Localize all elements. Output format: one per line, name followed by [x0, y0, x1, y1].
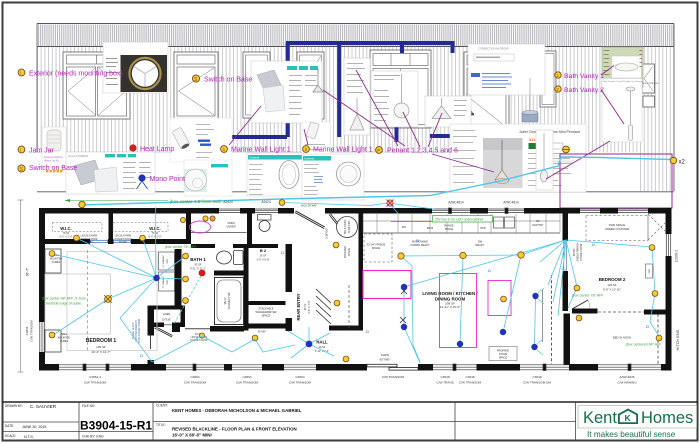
svg-text:C/W TRANSOM DM: C/W TRANSOM DM [523, 381, 551, 385]
svg-text:25v line in for LED undercabin: 25v line in for LED undercabinet [435, 218, 483, 222]
svg-text:POCKET DOOR: POCKET DOOR [81, 239, 98, 241]
svg-text:C/W TRANS: C/W TRANS [436, 381, 453, 385]
svg-text:6'-0" X 2'-0": 6'-0" X 2'-0" [59, 236, 72, 239]
svg-text:A/WC4814: A/WC4814 [448, 201, 464, 205]
svg-text:29 SF: 29 SF [319, 346, 326, 349]
svg-text:FROSTED FRENCH: FROSTED FRENCH [136, 320, 138, 342]
svg-text:POCKET DOOR: POCKET DOOR [115, 239, 132, 241]
svg-text:36"X80": 36"X80" [258, 332, 266, 334]
svg-text:LIVING ROOM / KITCHEN /: LIVING ROOM / KITCHEN / [422, 291, 478, 296]
svg-text:WO: WO [402, 225, 406, 229]
svg-text:B 2: B 2 [260, 248, 267, 253]
svg-text:DW: DW [478, 240, 483, 244]
svg-text:lumens: lumens [305, 157, 315, 161]
svg-text:3T CABINET: 3T CABINET [162, 254, 165, 267]
svg-text:FILE NO:: FILE NO: [82, 404, 95, 408]
svg-text:P: P [377, 148, 380, 153]
svg-text:UNDER COUNTER: UNDER COUNTER [605, 227, 630, 231]
svg-text:A/WC4845: A/WC4845 [620, 375, 635, 379]
svg-text:PPD: PPD [167, 258, 169, 263]
svg-text:REVISED BLACKLINE - FLOOR PLAN: REVISED BLACKLINE - FLOOR PLAN & FRONT E… [172, 427, 297, 432]
svg-text:C3848: C3848 [440, 375, 449, 379]
svg-text:10'-4" X 12'-7": 10'-4" X 12'-7" [92, 350, 111, 354]
svg-text:Penant 1,2,3,4,5 and 6: Penant 1,2,3,4,5 and 6 [387, 148, 458, 155]
svg-text:C/W TRANSOM: C/W TRANSOM [289, 381, 312, 385]
svg-text:Marine Wall Light 1: Marine Wall Light 1 [231, 147, 291, 154]
svg-text:SPACE: SPACE [347, 247, 351, 256]
svg-text:D: D [646, 324, 649, 329]
svg-text:D: D [488, 268, 491, 273]
svg-text:36'-7": 36'-7" [26, 267, 30, 276]
svg-text:MICROWAVE: MICROWAVE [412, 240, 428, 244]
svg-text:C/W TRANSOM: C/W TRANSOM [382, 375, 405, 379]
svg-text:18"X30": 18"X30" [162, 319, 171, 322]
svg-text:REAR ENTRY: REAR ENTRY [296, 293, 301, 320]
svg-text:Exterior (needs mounting box): Exterior (needs mounting box) [29, 71, 123, 78]
svg-text:High Powder 2 Light Pendant in: High Powder 2 Light Pendant in Chrome [603, 80, 643, 83]
svg-text:A2424: A2424 [261, 200, 270, 204]
svg-text:9'-11" X 11'-1": 9'-11" X 11'-1" [190, 267, 206, 271]
svg-text:9'-8" X 10'-10": 9'-8" X 10'-10" [603, 288, 621, 292]
svg-text:K: K [625, 413, 632, 423]
svg-text:jbox center 48" AFF, 5' from: jbox center 48" AFF, 5' from [41, 297, 86, 301]
svg-text:Bath Vanity 2: Bath Vanity 2 [564, 87, 604, 94]
svg-text:KENT HOMES - DEBORAH NICHOLSON: KENT HOMES - DEBORAH NICHOLSON & MICHAEL… [172, 408, 302, 413]
svg-text:D: D [140, 353, 143, 358]
svg-text:D: D [416, 238, 419, 243]
svg-text:C/W TRANSOM: C/W TRANSOM [236, 381, 259, 385]
svg-text:home COSMOS: home COSMOS [68, 154, 88, 158]
svg-text:CUBES: CUBES [52, 261, 61, 264]
svg-text:STACKABLE: STACKABLE [258, 307, 273, 311]
svg-text:I: I [20, 148, 21, 153]
svg-text:DRAWN BY:: DRAWN BY: [5, 404, 23, 408]
svg-text:CHK BY: ENG: CHK BY: ENG [82, 435, 104, 439]
svg-text:bedside edge of cubie: bedside edge of cubie [46, 302, 81, 306]
svg-text:3'-0" X 8'-8": 3'-0" X 8'-8" [256, 259, 269, 262]
svg-text:TITLE:: TITLE: [156, 423, 166, 427]
svg-text:KHPD: KHPD [381, 353, 390, 357]
svg-text:LINEN: LINEN [163, 313, 171, 316]
svg-text:PPD: PPD [167, 279, 169, 284]
svg-text:A2424: A2424 [223, 200, 232, 204]
svg-text:DATE:: DATE: [5, 424, 14, 428]
svg-text:HALL: HALL [316, 340, 328, 345]
svg-text:BD-B: BD-B [427, 226, 433, 230]
svg-text:C2039-2: C2039-2 [675, 250, 679, 262]
svg-text:CLIENT:: CLIENT: [156, 404, 168, 408]
svg-text:C3848: C3848 [532, 375, 541, 379]
svg-text:SPACE: SPACE [372, 246, 381, 250]
svg-text:Mason Jar Kit: Mason Jar Kit [44, 160, 59, 163]
svg-text:Heat Lamp: Heat Lamp [140, 146, 174, 153]
svg-text:W.I.C.: W.I.C. [60, 226, 71, 231]
svg-text:jbox center 78" AFF: jbox center 78" AFF [164, 245, 197, 249]
svg-text:60"X80": 60"X80" [380, 358, 391, 362]
svg-text:BED IN NOOK: BED IN NOOK [613, 336, 631, 340]
svg-text:CONNECTION IN GROUP: CONNECTION IN GROUP [478, 47, 509, 51]
svg-text:OPEN: OPEN [227, 221, 234, 225]
svg-text:A/WC4814: A/WC4814 [503, 201, 519, 205]
svg-text:UNDER: UNDER [226, 225, 235, 229]
svg-text:126 SF: 126 SF [607, 283, 616, 287]
svg-text:Jam Jar: Jam Jar [29, 148, 55, 155]
svg-text:Mono Point: Mono Point [150, 176, 185, 183]
svg-text:SPACE: SPACE [445, 227, 454, 231]
svg-text:C/W TRANSOM: C/W TRANSOM [30, 320, 34, 342]
svg-text:Switch on Base: Switch on Base [204, 77, 252, 84]
svg-text:N.T.S.: N.T.S. [24, 435, 34, 439]
svg-text:Homes: Homes [641, 409, 693, 427]
svg-text:SPACE: SPACE [499, 357, 508, 360]
svg-text:D: D [592, 242, 595, 247]
svg-text:26 SF: 26 SF [260, 255, 267, 258]
svg-text:SOAKER TUB: SOAKER TUB [227, 292, 231, 309]
svg-text:jbox center 4.5' from wall: jbox center 4.5' from wall [169, 199, 221, 204]
svg-text:D-36"X80": D-36"X80" [326, 228, 329, 239]
svg-text:COMBO READY: COMBO READY [410, 243, 430, 247]
svg-text:105 SF: 105 SF [96, 345, 106, 349]
svg-text:C3864-3: C3864-3 [89, 375, 101, 379]
svg-text:BEDROOM 2: BEDROOM 2 [599, 277, 626, 282]
svg-text:30X80 POCKET DOOR: 30X80 POCKET DOOR [139, 319, 141, 344]
svg-text:SPACE: SPACE [262, 314, 271, 318]
svg-text:C. SAUVIER: C. SAUVIER [30, 404, 57, 409]
svg-text:FREEZER: FREEZER [343, 246, 347, 258]
svg-text:WASHER/DRYER: WASHER/DRYER [255, 310, 276, 314]
svg-text:B3904-15-R1: B3904-15-R1 [80, 419, 152, 433]
svg-text:W.I.C.: W.I.C. [149, 226, 160, 231]
svg-text:jbox center 78" AFF: jbox center 78" AFF [571, 294, 604, 298]
svg-text:45 SF: 45 SF [304, 303, 307, 310]
svg-text:CUBES: CUBES [60, 340, 69, 343]
svg-text:READY: READY [476, 243, 485, 247]
svg-text:KICK 36"X80": KICK 36"X80" [301, 204, 317, 208]
svg-text:36": 36" [536, 219, 540, 223]
svg-text:28"X80": 28"X80" [574, 248, 576, 256]
svg-text:16'-0" X 60'-0" MINI: 16'-0" X 60'-0" MINI [172, 433, 212, 438]
svg-text:SINGLE FRENCH: SINGLE FRENCH [578, 242, 580, 261]
svg-text:5'-6" X 7'-9": 5'-6" X 7'-9" [308, 300, 311, 313]
svg-text:TANK PPD: TANK PPD [347, 220, 351, 233]
svg-text:Marine Wall Light 1: Marine Wall Light 1 [313, 147, 373, 154]
svg-text:JUNE 30, 2015: JUNE 30, 2015 [22, 425, 46, 429]
svg-text:D: D [366, 329, 369, 334]
svg-text:POCKET DOOR: POCKET DOOR [581, 243, 583, 260]
svg-text:C3864: C3864 [295, 375, 304, 379]
svg-text:C3864: C3864 [242, 375, 251, 379]
svg-text:3T CABINET: 3T CABINET [162, 275, 165, 288]
svg-text:HITCH END: HITCH END [676, 329, 680, 350]
svg-text:92 SF: 92 SF [195, 263, 202, 267]
svg-text:6'-0" X 2'-0": 6'-0" X 2'-0" [148, 236, 161, 239]
svg-text:x2: x2 [679, 160, 686, 166]
svg-text:30"X80": 30"X80" [119, 242, 127, 244]
svg-text:C3864: C3864 [190, 375, 199, 379]
svg-text:C/W TRANSOM: C/W TRANSOM [184, 381, 207, 385]
svg-text:C3848: C3848 [465, 375, 474, 379]
svg-text:36x72: 36x72 [223, 297, 227, 305]
svg-text:D: D [281, 250, 284, 255]
svg-text:RANGE: RANGE [444, 224, 453, 228]
svg-text:41'-11" X 15'-0": 41'-11" X 15'-0" [440, 305, 460, 309]
svg-text:I: I [20, 71, 21, 76]
svg-text:Kent: Kent [583, 409, 617, 427]
svg-text:C3864: C3864 [25, 326, 29, 335]
svg-text:PPD: PPD [649, 268, 651, 273]
svg-text:WH & PRES: WH & PRES [343, 219, 347, 234]
svg-text:BATH 1: BATH 1 [190, 257, 206, 262]
svg-text:lumens: lumens [250, 156, 260, 160]
svg-text:PPD: PPD [480, 226, 485, 230]
svg-text:SCALE:: SCALE: [5, 434, 16, 438]
svg-text:Bath Vanity 1: Bath Vanity 1 [564, 73, 604, 80]
svg-text:It makes beautiful sense: It makes beautiful sense [587, 430, 676, 439]
svg-text:C/W AWNING: C/W AWNING [617, 381, 637, 385]
svg-text:LINCOLN PARK: LINCOLN PARK [81, 235, 98, 238]
svg-text:Switch on Base: Switch on Base [29, 165, 77, 172]
svg-text:C/W TRANSOM: C/W TRANSOM [459, 381, 482, 385]
svg-text:D&P/TRY: D&P/TRY [532, 223, 543, 227]
svg-text:jbox centered 64" AFF: jbox centered 64" AFF [625, 343, 662, 347]
svg-text:C/W TRANSOM: C/W TRANSOM [84, 381, 107, 385]
svg-text:LINCOLN PARK: LINCOLN PARK [115, 235, 132, 238]
svg-text:32 3/4" FRIDGE: 32 3/4" FRIDGE [367, 243, 386, 247]
svg-text:BEDROOM 1: BEDROOM 1 [86, 338, 117, 344]
